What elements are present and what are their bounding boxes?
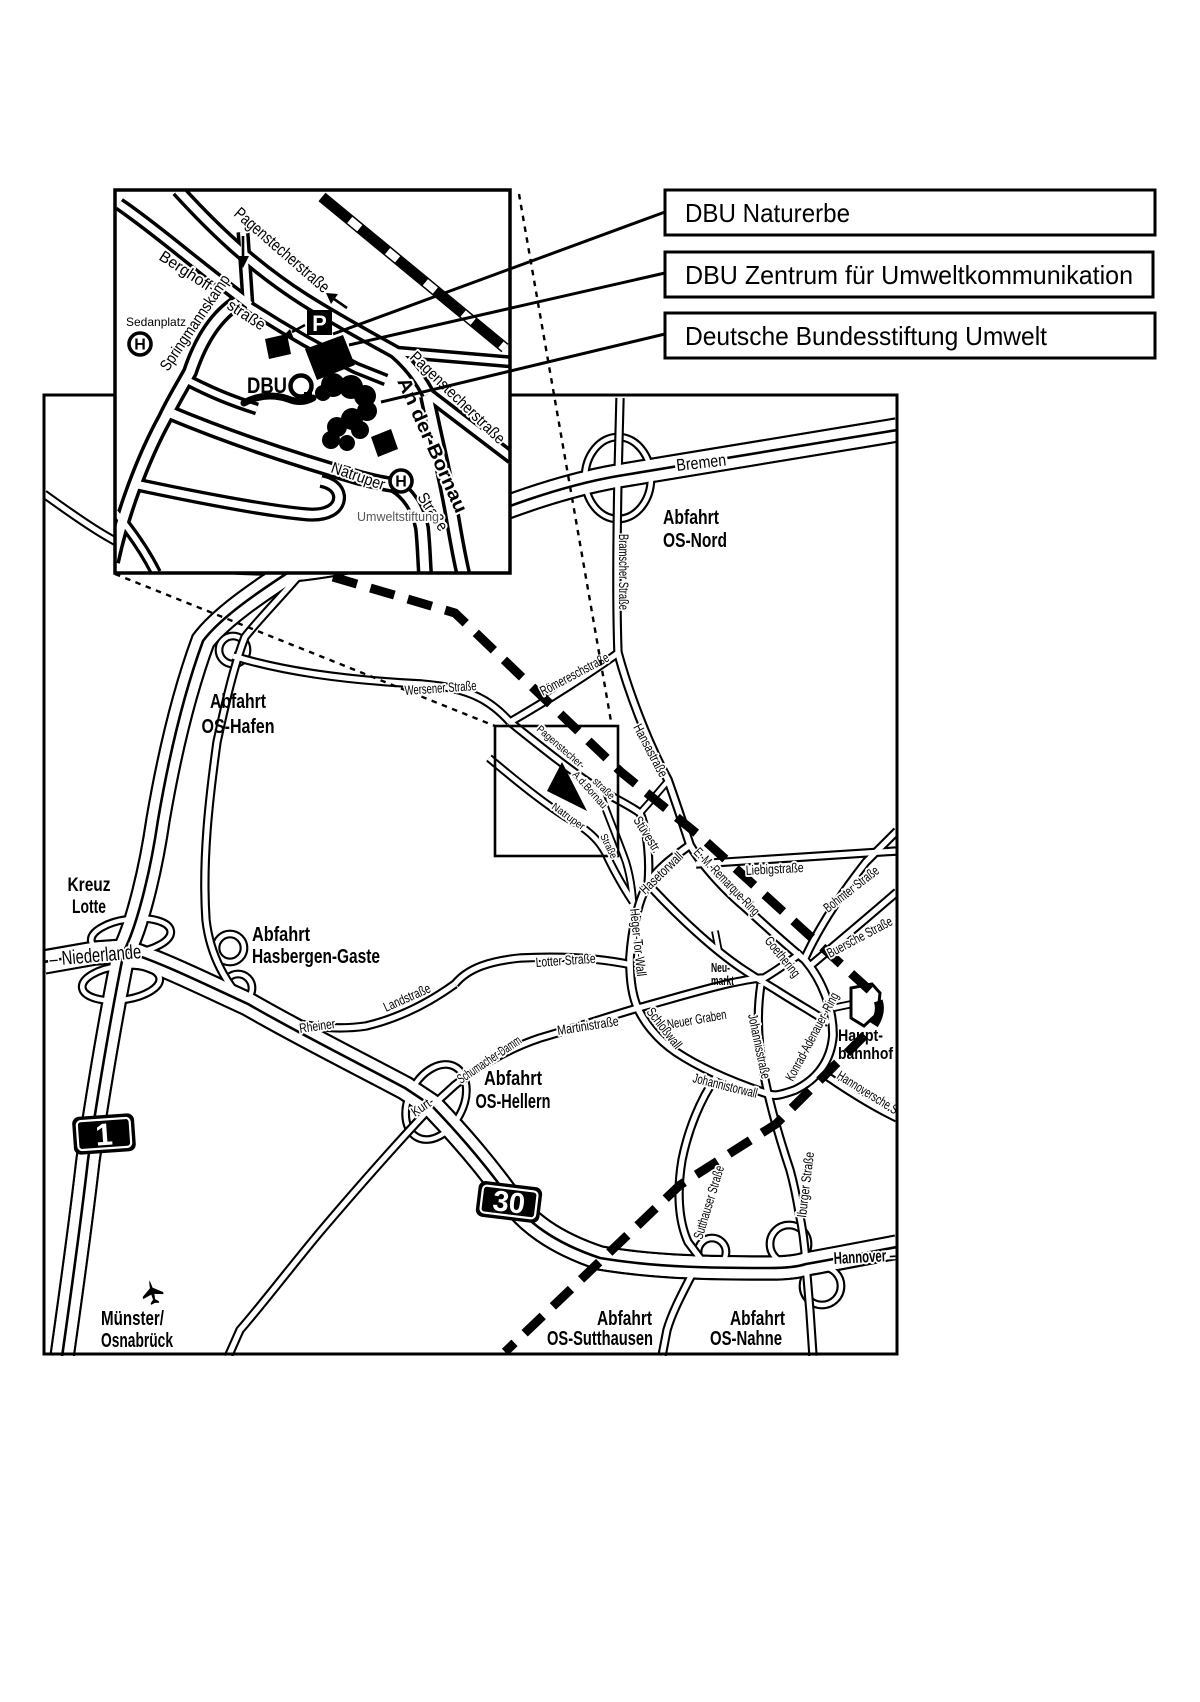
svg-text:Abfahrt: Abfahrt [730, 1308, 785, 1330]
svg-text:OS-Hellern: OS-Hellern [476, 1091, 551, 1113]
svg-text:Abfahrt: Abfahrt [210, 691, 266, 713]
svg-text:Haupt-: Haupt- [838, 1026, 883, 1045]
svg-text:Deutsche Bundesstiftung Umwelt: Deutsche Bundesstiftung Umwelt [685, 321, 1048, 351]
svg-text:1: 1 [94, 1116, 114, 1152]
svg-text:OS-Nahne: OS-Nahne [710, 1328, 782, 1350]
svg-text:Abfahrt: Abfahrt [663, 507, 719, 529]
svg-text:markt: markt [711, 974, 735, 988]
svg-text:Bramscher Straße: Bramscher Straße [616, 534, 631, 610]
svg-text:H: H [134, 337, 146, 354]
svg-text:Hasbergen-Gaste: Hasbergen-Gaste [252, 946, 380, 968]
svg-text:OS-Nord: OS-Nord [663, 530, 727, 552]
svg-text:OS-Sutthausen: OS-Sutthausen [547, 1328, 653, 1350]
svg-text:bahnhof: bahnhof [838, 1044, 893, 1063]
svg-text:P: P [312, 311, 327, 336]
svg-text:Münster/: Münster/ [101, 1308, 164, 1330]
svg-text:H: H [395, 474, 407, 491]
svg-text:30: 30 [491, 1185, 527, 1221]
svg-text:DBU Zentrum für Umweltkommunik: DBU Zentrum für Umweltkommunikation [685, 260, 1133, 290]
svg-text:Abfahrt: Abfahrt [597, 1308, 652, 1330]
svg-text:Abfahrt: Abfahrt [484, 1068, 542, 1090]
svg-text:Hannover –: Hannover – [833, 1246, 896, 1268]
svg-text:DBU Naturerbe: DBU Naturerbe [685, 198, 850, 228]
svg-text:Sedanplatz: Sedanplatz [126, 315, 186, 329]
svg-text:Kreuz: Kreuz [68, 875, 111, 896]
svg-text:OS-Hafen: OS-Hafen [202, 716, 275, 738]
svg-text:Umweltstiftung: Umweltstiftung [357, 510, 439, 524]
svg-text:Abfahrt: Abfahrt [252, 924, 310, 946]
svg-text:Osnabrück: Osnabrück [101, 1330, 174, 1352]
svg-text:Lotte: Lotte [72, 897, 106, 918]
svg-text:Liebigstraße: Liebigstraße [745, 860, 804, 878]
svg-text:Neu-: Neu- [711, 961, 730, 975]
